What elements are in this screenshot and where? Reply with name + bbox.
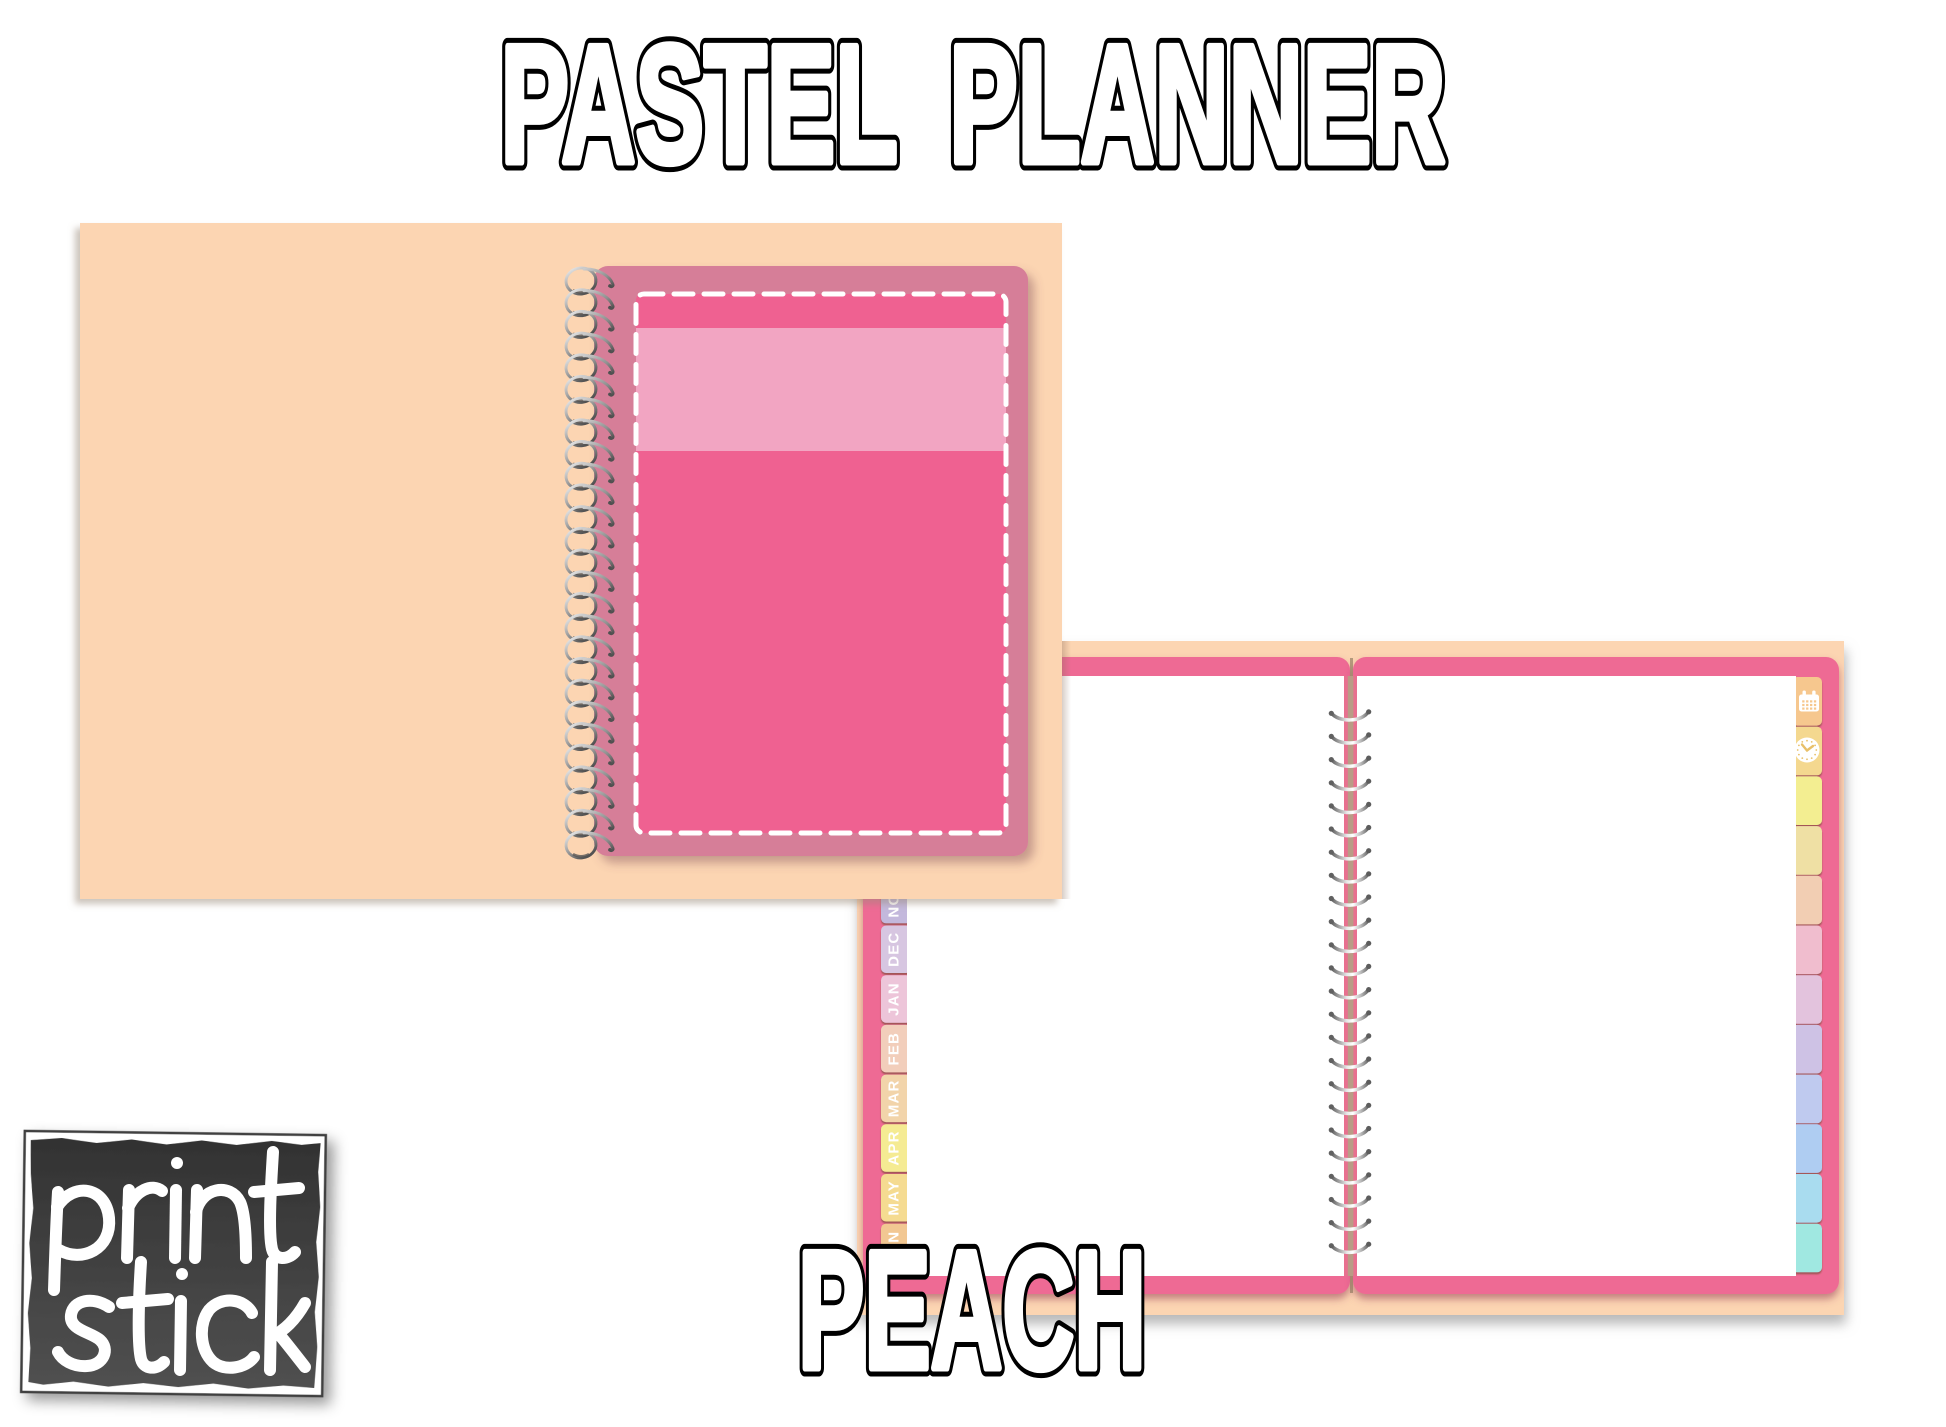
svg-text:FEB: FEB: [886, 1032, 903, 1066]
svg-text:APR: APR: [886, 1130, 903, 1165]
svg-text:MAR: MAR: [886, 1079, 903, 1117]
svg-text:DEC: DEC: [886, 932, 903, 967]
svg-text:MAY: MAY: [886, 1180, 903, 1216]
svg-text:PEACH: PEACH: [798, 1216, 1146, 1404]
svg-text:PASTEL PLANNER: PASTEL PLANNER: [501, 10, 1446, 198]
svg-text:JAN: JAN: [886, 982, 903, 1016]
